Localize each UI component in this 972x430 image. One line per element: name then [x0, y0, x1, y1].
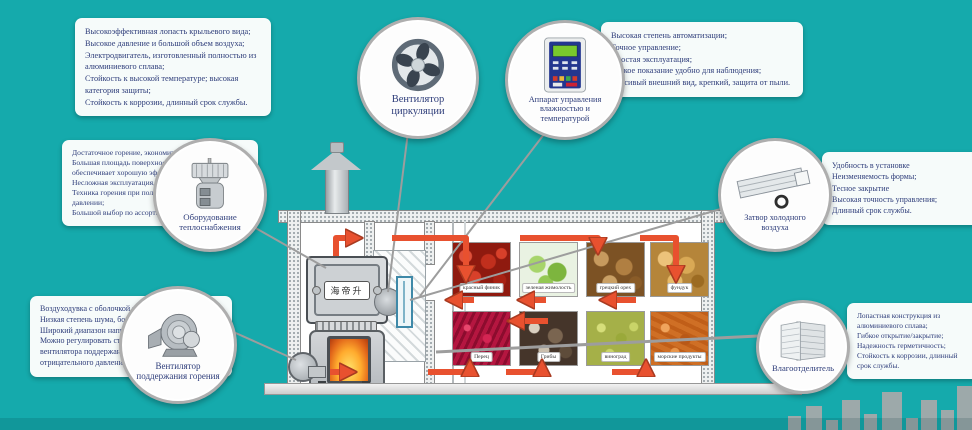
chimney-tip [330, 142, 344, 153]
callout-circle-label: Вентилятор поддержания горения [135, 361, 221, 382]
product-label: виноград [601, 352, 631, 362]
louver-vent-icon [777, 320, 829, 362]
bolt-icon [373, 286, 382, 295]
callout-circle-label: Вентилятор циркуляции [375, 94, 461, 118]
features-box-circulation-fan: Высокоэффективная лопасть крыльевого вид… [75, 18, 271, 116]
bolt-icon [312, 286, 321, 295]
callout-circle-combustion-fan: Вентилятор поддержания горения [119, 286, 237, 404]
product-tile-greens: зеленая жимолость [519, 242, 578, 297]
boiler-icon [181, 158, 239, 210]
callout-circle-cold-air-valve: Затвор холодного воздуха [718, 138, 832, 252]
internal-damper [396, 276, 413, 328]
furnace-blower-duct [308, 366, 326, 378]
centrifugal-blower-icon [146, 309, 210, 359]
bottom-strip [0, 418, 972, 430]
product-tile-grapes: виноград [586, 311, 645, 366]
callout-circle-circulation-fan: Вентилятор циркуляции [357, 17, 479, 139]
air-valve-icon [733, 157, 817, 211]
chimney [325, 168, 349, 214]
product-tile-nuts: фундук [650, 242, 709, 297]
product-label: грецкий орех [596, 283, 635, 293]
product-label: Перец [470, 352, 493, 362]
product-label: фундук [667, 283, 693, 293]
callout-circle-control-device: Аппарат управления влажностью и температ… [505, 20, 625, 140]
axial-fan-icon [391, 38, 445, 92]
dryer-infographic: 海帝升 красный финик зеленая жимолость грец… [0, 0, 972, 430]
features-box-control-device: Высокая степень автоматизации;Точное упр… [601, 22, 803, 97]
callout-circle-label: Влагоотделитель [764, 364, 842, 374]
product-label: морские продукты [653, 352, 705, 362]
product-tile-walnuts: грецкий орех [586, 242, 645, 297]
product-label: Грибы [537, 352, 560, 362]
callout-circle-label: Затвор холодного воздуха [733, 213, 817, 232]
furnace-brand-label: 海帝升 [324, 281, 369, 300]
furnace-fire-window [327, 336, 371, 384]
product-tile-pepper: Перец [452, 311, 511, 366]
callout-circle-label: Аппарат управления влажностью и температ… [519, 95, 611, 124]
damper-vane [403, 281, 405, 323]
callout-circle-moisture-separator: Влагоотделитель [756, 300, 850, 394]
features-box-cold-air-valve: Удобность в установкеНеизменяемость форм… [822, 152, 972, 225]
product-label: красный финик [459, 283, 504, 293]
chimney-cap [311, 150, 361, 170]
features-box-moisture-separator: Лопастная конструкция из алюминиевого сп… [847, 303, 972, 379]
controller-icon [543, 37, 587, 93]
foundation-slab [264, 383, 802, 395]
product-tile-seafood: морские продукты [650, 311, 709, 366]
callout-circle-label: Оборудование теплоснабжения [164, 212, 256, 232]
product-tile-mushrooms: Грибы [519, 311, 578, 366]
callout-circle-heating-equipment: Оборудование теплоснабжения [153, 138, 267, 252]
product-label: зеленая жимолость [522, 283, 576, 293]
product-tile-red-dates: красный финик [452, 242, 511, 297]
furnace-heat-exchange-box: 海帝升 [306, 256, 388, 324]
